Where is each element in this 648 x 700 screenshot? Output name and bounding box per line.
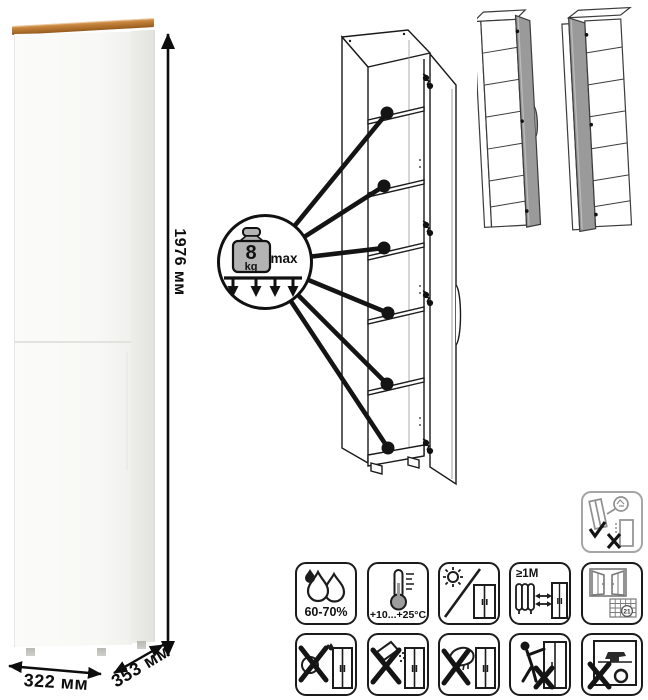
svg-text:+10...+25°C: +10...+25°C xyxy=(370,609,427,621)
calendar-icon: 21 xyxy=(610,599,636,617)
foot xyxy=(371,463,382,474)
heat-distance-icon: ≥1M xyxy=(509,562,571,625)
no-overload-icon xyxy=(581,633,643,696)
svg-text:≥1M: ≥1M xyxy=(516,568,538,580)
shelf xyxy=(368,378,424,395)
radiator-icon xyxy=(516,584,534,614)
door-variant-right xyxy=(477,10,543,230)
no-scraper-icon xyxy=(438,633,500,696)
sun-icon xyxy=(443,567,463,587)
shelf xyxy=(368,243,424,260)
magnifier-icon xyxy=(614,497,628,511)
no-wet-cleaning-icon xyxy=(295,633,357,696)
spacing-arrows-icon xyxy=(535,593,552,607)
cabinet-side-panel xyxy=(131,30,155,643)
handle-groove xyxy=(126,352,128,470)
svg-text:60-70%: 60-70% xyxy=(304,605,347,619)
no-abrasive-powder-icon xyxy=(367,633,429,696)
humidity-icon: 60-70% xyxy=(295,562,357,625)
no-dragging-icon xyxy=(509,633,571,696)
width-label: 322 мм xyxy=(15,670,96,696)
wardrobe-icon xyxy=(405,648,424,688)
callout-dots xyxy=(378,107,395,455)
door-handle-recess xyxy=(456,285,461,345)
svg-text:kg: kg xyxy=(245,261,258,273)
wardrobe-icon xyxy=(476,648,495,688)
cabinet-front-panel xyxy=(14,32,132,647)
door-seam xyxy=(14,341,131,343)
svg-text:max: max xyxy=(270,251,298,266)
cabinet-foot xyxy=(26,648,35,656)
ventilation-icon: 21 xyxy=(581,562,643,625)
wall-anchor-icon xyxy=(581,491,643,553)
load-limit-callout: 8 kg max xyxy=(219,216,312,309)
cabinet-carcass xyxy=(342,30,461,484)
height-arrow xyxy=(158,24,180,664)
wardrobe-icon xyxy=(333,648,352,688)
foot xyxy=(408,457,419,468)
cabinet-foot xyxy=(97,648,106,656)
product-infographic: 1976 мм 322 мм 353 мм xyxy=(0,0,648,700)
x-icon xyxy=(608,534,620,548)
svg-text:21: 21 xyxy=(623,609,631,616)
open-window-icon xyxy=(590,569,626,596)
shelf xyxy=(368,107,424,124)
wardrobe-icon xyxy=(474,585,495,618)
door-variant-left xyxy=(561,8,641,232)
kettlebell-icon xyxy=(615,670,627,682)
height-label: 1976 мм xyxy=(168,219,188,305)
door-variants xyxy=(477,4,645,236)
cabinet-line-drawing: 8 kg max xyxy=(210,20,462,492)
no-direct-sunlight-icon xyxy=(438,562,500,625)
temperature-icon: +10...+25°C xyxy=(367,562,429,625)
wardrobe-icon xyxy=(552,583,567,618)
